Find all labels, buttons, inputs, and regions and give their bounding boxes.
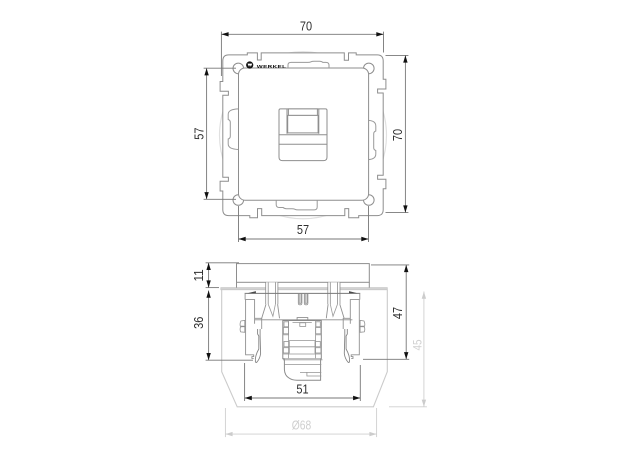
svg-text:WERKEL: WERKEL xyxy=(257,64,287,70)
svg-text:36: 36 xyxy=(191,317,206,329)
svg-text:70: 70 xyxy=(390,129,405,141)
svg-text:11: 11 xyxy=(191,269,206,281)
svg-text:51: 51 xyxy=(296,382,308,397)
svg-text:57: 57 xyxy=(297,222,309,237)
svg-text:47: 47 xyxy=(390,307,405,319)
svg-text:45: 45 xyxy=(410,339,424,350)
svg-text:57: 57 xyxy=(191,128,206,140)
svg-text:70: 70 xyxy=(300,19,312,34)
svg-text:Ø68: Ø68 xyxy=(292,418,312,432)
